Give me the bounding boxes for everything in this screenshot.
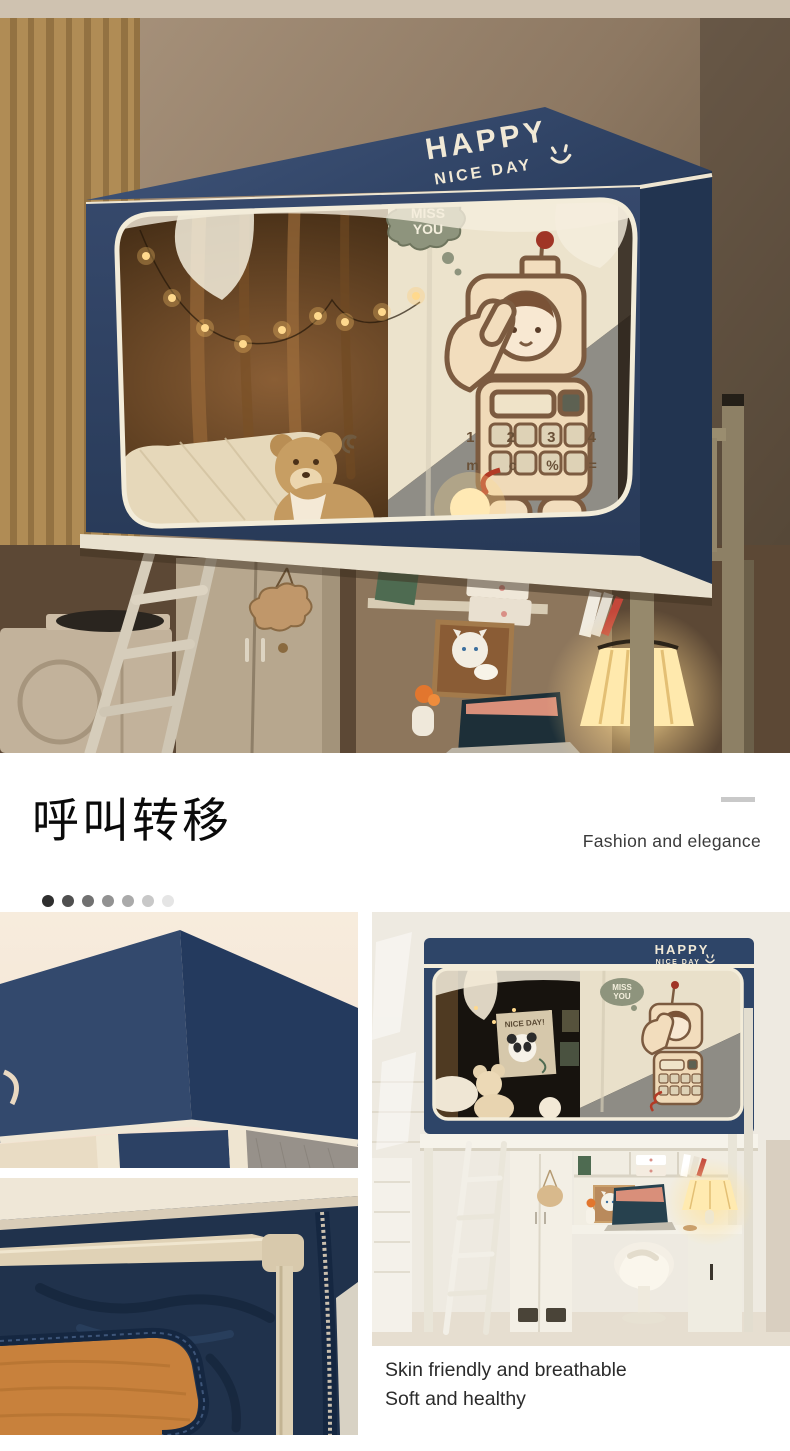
mini-coffee-cup [683, 1225, 697, 1231]
detail-photo-frame-corner [0, 1178, 358, 1435]
mini-left-cabinet [372, 1158, 412, 1332]
mini-wardrobe [510, 1151, 572, 1332]
canopy-pole-vertical [276, 1266, 293, 1435]
cabinet [0, 610, 172, 753]
mini-bubble-line2: YOU [613, 992, 631, 1001]
mini-brand-line1: HAPPY [655, 942, 710, 957]
gallery-photo-full-bed: HAPPY NICE DAY [372, 912, 790, 1346]
carousel-dot [142, 895, 154, 907]
side-wardrobe [766, 1140, 790, 1332]
canopy-right-face [640, 171, 712, 585]
carousel-dot [82, 895, 94, 907]
mini-interior: NICE DAY! [426, 969, 742, 1122]
caption-line-2: Soft and healthy [385, 1385, 627, 1414]
canopy-interior: 1 2 3 4 m c % = MISS YOU [100, 190, 652, 560]
mini-lamp [666, 1158, 754, 1246]
mini-bubble-line1: MISS [612, 983, 632, 992]
cat-picture [434, 622, 512, 698]
mini-picture-2 [560, 1042, 579, 1066]
carousel-dot [122, 895, 134, 907]
detail-photo-canopy-corner [0, 912, 358, 1168]
bell [278, 643, 288, 653]
mini-calendar [578, 1156, 591, 1175]
panda-banner: NICE DAY! [496, 1010, 556, 1078]
zipper-seam [322, 1212, 330, 1435]
carousel-dot [162, 895, 174, 907]
section-title: 呼叫转移 [32, 782, 232, 851]
mini-cloud-sign [537, 1185, 563, 1207]
product-caption: Skin friendly and breathable Soft and he… [385, 1356, 627, 1414]
mini-orb-lamp [539, 1097, 561, 1119]
carousel-dots [42, 895, 174, 907]
board-opening [0, 1333, 204, 1435]
caption-line-1: Skin friendly and breathable [385, 1356, 627, 1385]
mini-cartoon-curtain: MISS YOU [580, 969, 742, 1119]
ceiling-strip [0, 0, 790, 20]
carousel-dot [102, 895, 114, 907]
mini-desk-cabinet [688, 1234, 742, 1332]
carousel-dot [42, 895, 54, 907]
accent-bar [721, 797, 755, 802]
mini-picture-1 [562, 1010, 579, 1032]
record-player [56, 610, 164, 632]
hero-photo: HAPPY NICE DAY [0, 0, 790, 753]
mini-top-piping [424, 964, 754, 968]
mini-vase [586, 1199, 596, 1225]
mini-canopy: HAPPY NICE DAY [424, 938, 754, 1134]
carousel-dot [62, 895, 74, 907]
keypad-row1: 1 2 3 4 [466, 429, 610, 446]
product-detail-page: HAPPY NICE DAY [0, 0, 790, 1451]
keypad-row2: m c % = [466, 457, 610, 473]
section-subtitle: Fashion and elegance [583, 831, 761, 852]
